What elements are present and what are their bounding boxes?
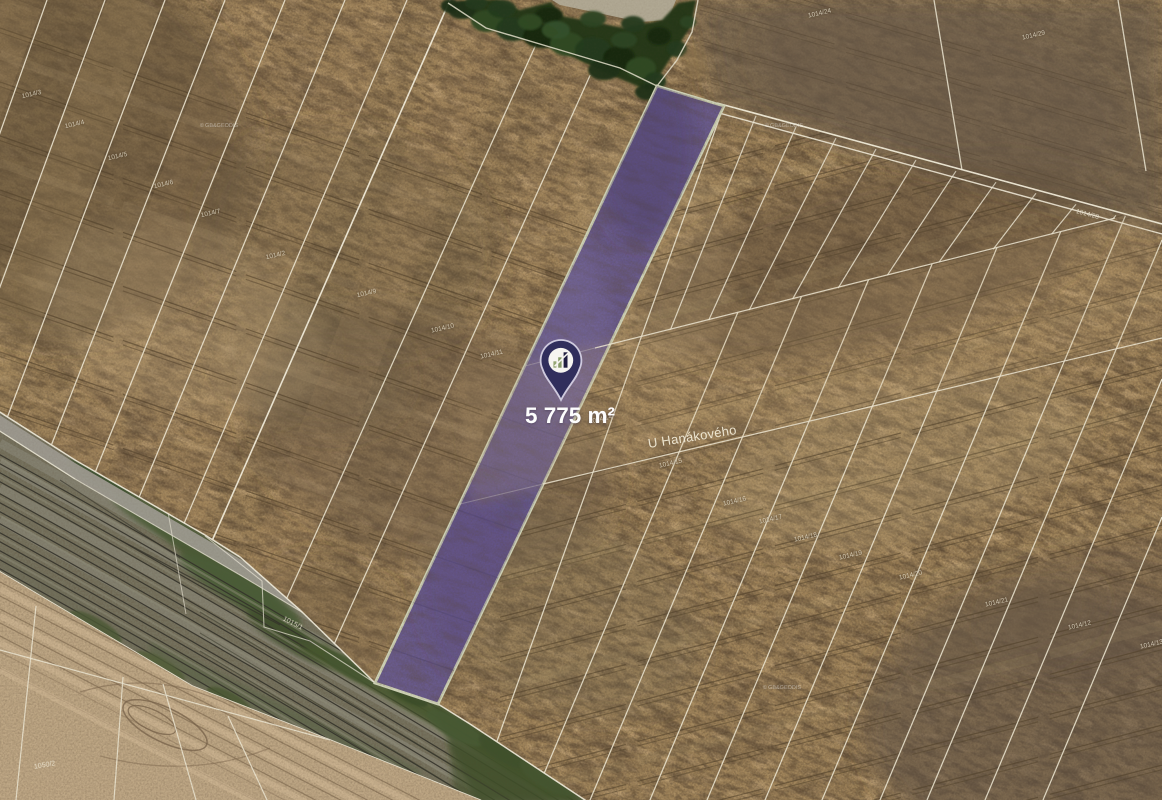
svg-text:© GB&GEODIS: © GB&GEODIS	[765, 123, 803, 129]
svg-text:© GB&GEODIS: © GB&GEODIS	[763, 685, 801, 691]
svg-text:5 775 m²: 5 775 m²	[525, 403, 616, 428]
svg-text:© GB&GEODIS: © GB&GEODIS	[200, 123, 238, 129]
